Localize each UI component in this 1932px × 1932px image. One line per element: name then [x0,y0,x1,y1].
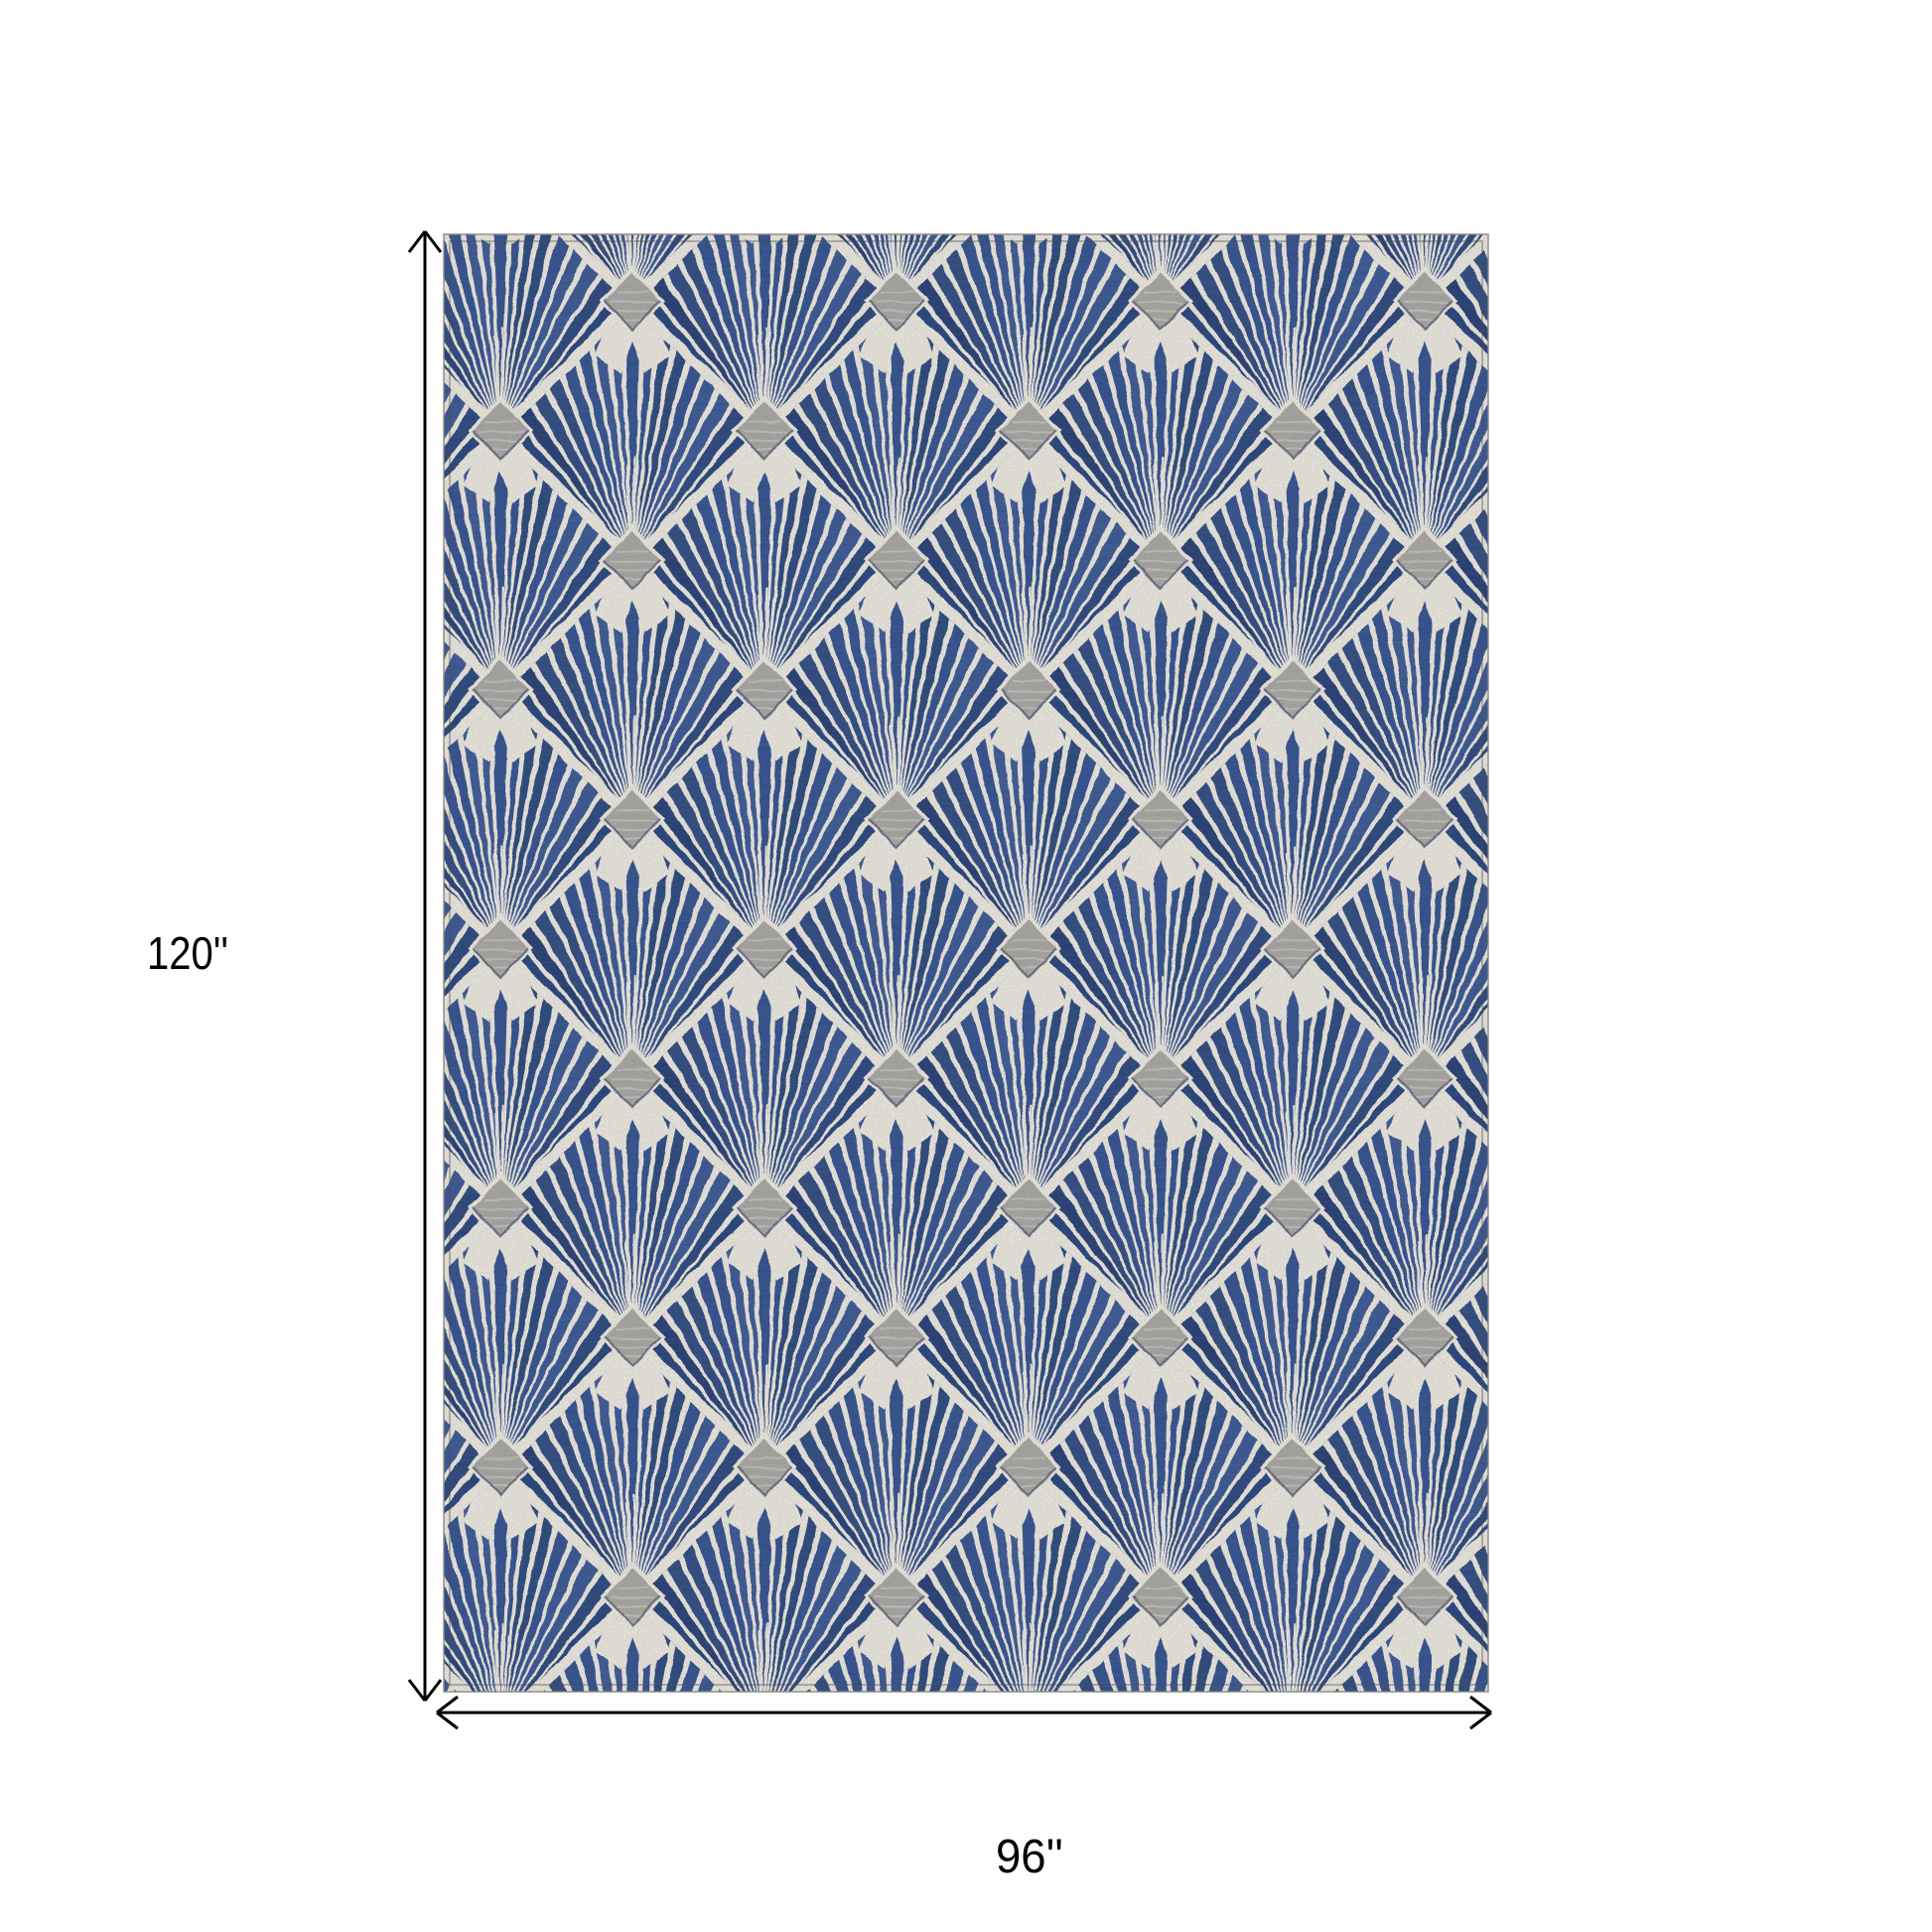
svg-text:96'': 96'' [996,1831,1063,1883]
svg-text:120'': 120'' [147,927,228,979]
